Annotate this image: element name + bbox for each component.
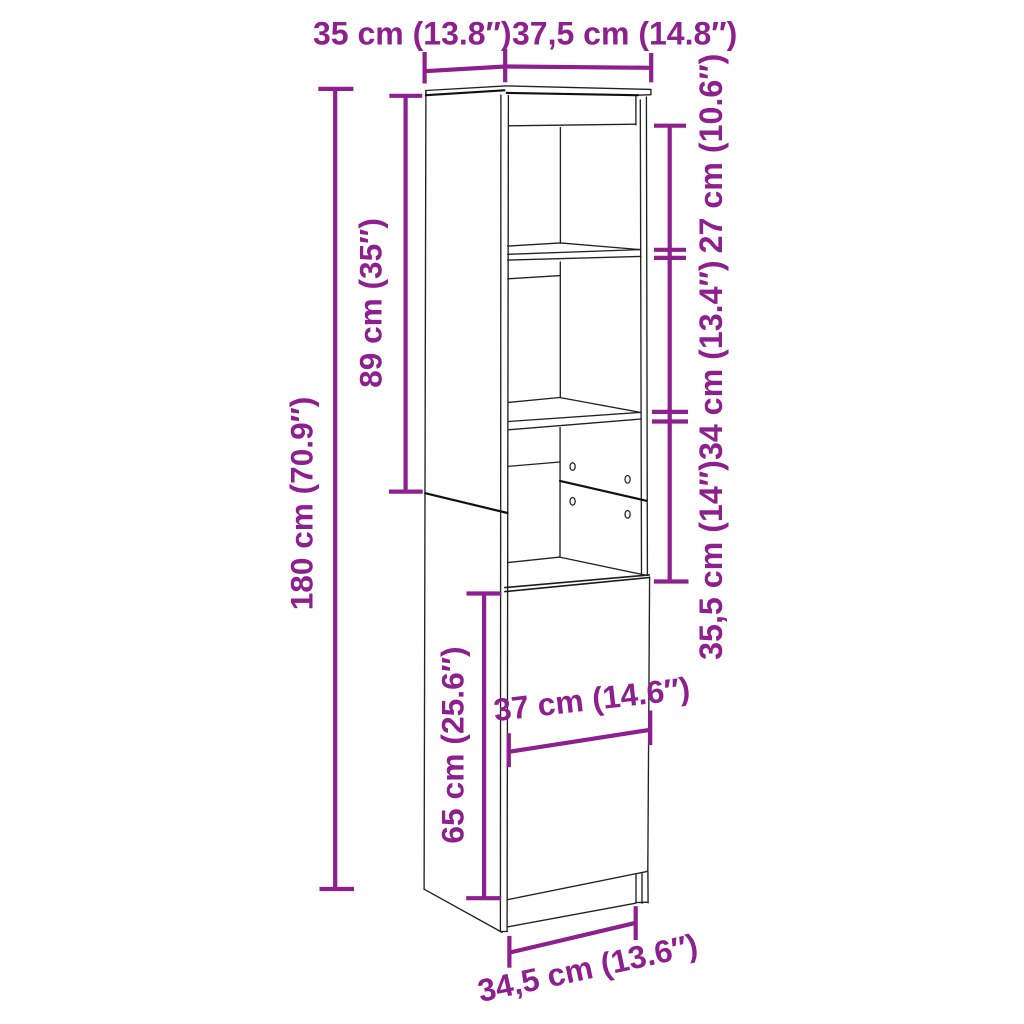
svg-text:180 cm (70.9″): 180 cm (70.9″) bbox=[284, 397, 320, 611]
svg-text:37,5 cm (14.8″): 37,5 cm (14.8″) bbox=[512, 16, 737, 52]
svg-text:35 cm (13.8″): 35 cm (13.8″) bbox=[313, 16, 512, 52]
svg-text:27 cm (10.6″): 27 cm (10.6″) bbox=[693, 54, 729, 254]
svg-text:89 cm (35″): 89 cm (35″) bbox=[353, 218, 389, 388]
svg-text:65 cm (25.6″): 65 cm (25.6″) bbox=[435, 646, 471, 843]
svg-text:37 cm (14.6″): 37 cm (14.6″) bbox=[492, 670, 692, 728]
svg-text:34 cm (13.4″): 34 cm (13.4″) bbox=[693, 260, 729, 460]
svg-text:35,5 cm (14″): 35,5 cm (14″) bbox=[693, 460, 729, 660]
